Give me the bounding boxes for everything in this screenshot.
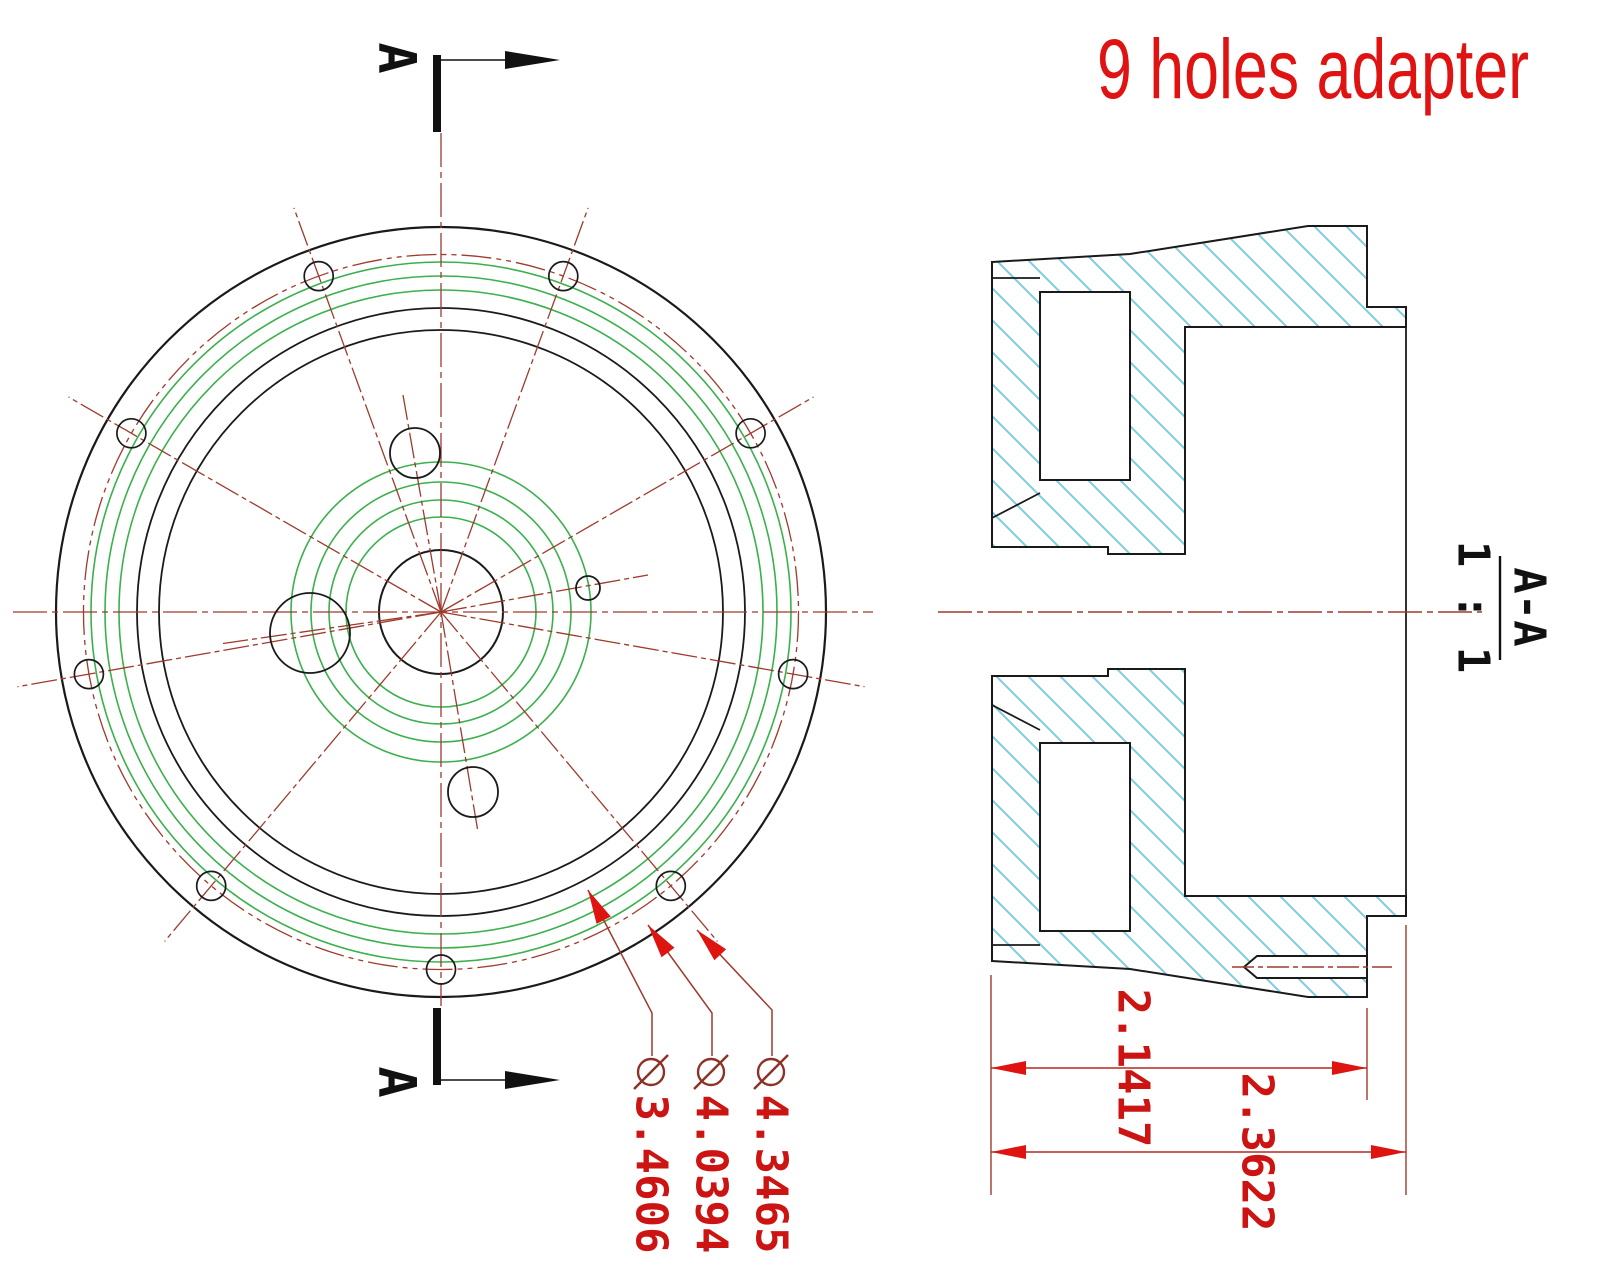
radial-centerline	[69, 397, 441, 612]
hole-centerline	[441, 612, 478, 829]
cad-drawing-canvas: 3.4606 4.0394 4.3465 A A	[0, 0, 1600, 1280]
width-dimension-text: 2.3622	[1232, 1073, 1283, 1232]
dimension-arrowheads	[991, 1061, 1406, 1159]
radial-centerline	[18, 612, 442, 687]
dimension-arrow-icon	[991, 1061, 1026, 1075]
dimension-arrow-icon	[1371, 1145, 1406, 1159]
mounting-holes	[270, 428, 600, 817]
hole-centerline	[403, 395, 441, 612]
hole-centerline	[441, 575, 648, 612]
mounting-hole	[390, 428, 440, 478]
diameter-symbol-icon	[754, 1055, 788, 1089]
mounting-hole	[270, 593, 350, 673]
section-body-upper	[992, 226, 1406, 554]
dimension-arrow-icon	[1332, 1061, 1367, 1075]
leader-arrowheads	[588, 890, 726, 960]
drawing-sheet: 3.4606 4.0394 4.3465 A A	[0, 0, 1600, 1280]
width-dimension-text: 2.1417	[1108, 989, 1159, 1148]
diameter-symbol-icon	[634, 1055, 668, 1089]
drawing-title: 9 holes adapter	[1097, 22, 1529, 116]
diameter-symbols	[634, 1055, 788, 1089]
dimension-lines	[991, 1068, 1406, 1152]
section-view-label: A-A 1 : 1	[1448, 541, 1555, 673]
dimension-arrow-icon	[991, 1145, 1026, 1159]
section-marker-label: A	[366, 1066, 426, 1097]
leader-arrow-icon	[588, 890, 611, 924]
radial-centerline	[441, 612, 717, 941]
view-direction-arrow-icon	[505, 51, 560, 69]
centerlines	[13, 133, 873, 1006]
section-name-label: A-A	[1504, 567, 1555, 646]
diameter-symbol-icon	[694, 1055, 728, 1089]
leader-arrow-icon	[648, 925, 675, 957]
section-view: 2.1417 2.3622 A-A 1 : 1	[938, 226, 1555, 1231]
section-scale-label: 1 : 1	[1448, 541, 1499, 673]
mounting-hole	[448, 767, 498, 817]
section-cut-marker-top: A	[366, 42, 560, 132]
section-cut-marker-bottom: A	[366, 1008, 560, 1098]
diameter-dimension-text: 4.0394	[686, 1095, 737, 1254]
section-body-lower	[992, 669, 1406, 997]
section-marker-label: A	[366, 42, 426, 73]
front-view: 3.4606 4.0394 4.3465 A A	[13, 42, 873, 1253]
radial-centerline	[165, 612, 441, 941]
radial-centerline	[441, 397, 813, 612]
diameter-dimension-text: 3.4606	[626, 1095, 677, 1254]
radial-centerline	[441, 612, 865, 687]
view-direction-arrow-icon	[505, 1071, 560, 1089]
diameter-dimension-text: 4.3465	[746, 1095, 797, 1254]
